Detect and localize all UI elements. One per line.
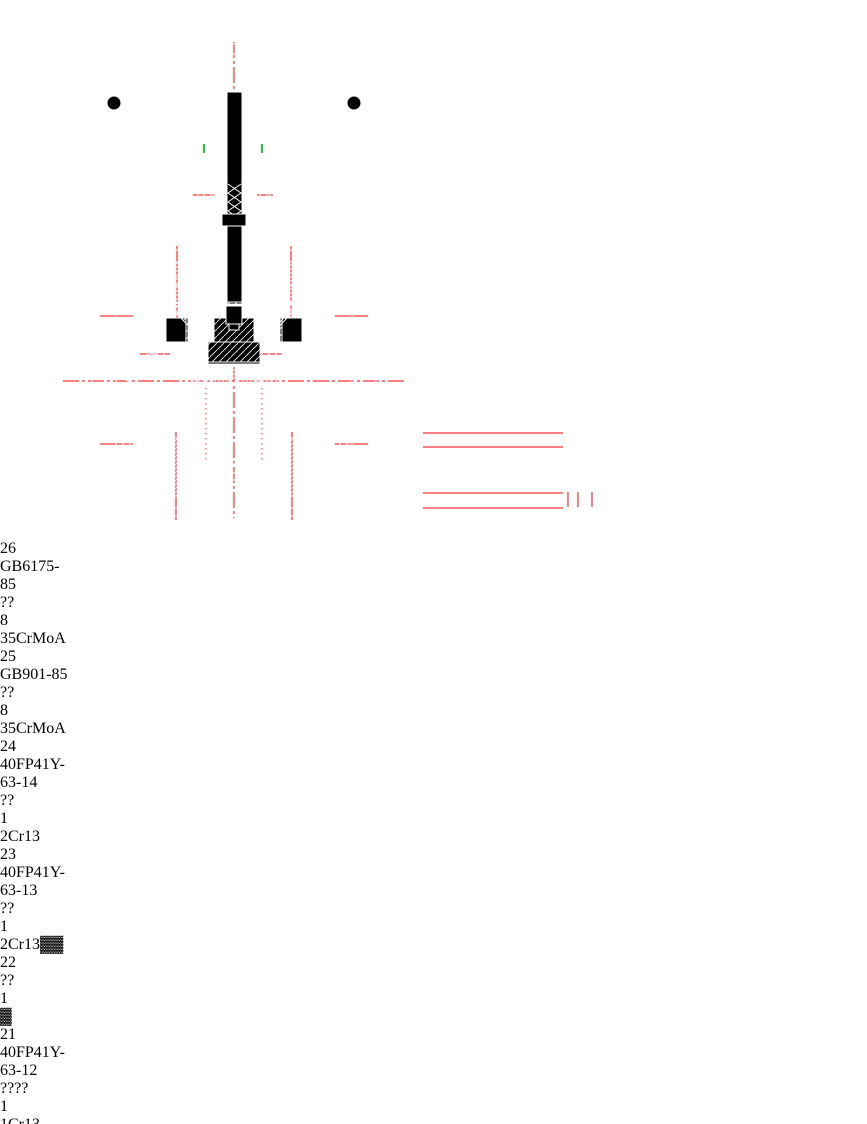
part-name: ?? xyxy=(0,972,75,990)
part-qty: 8 xyxy=(0,612,15,630)
part-code: GB6175-85 xyxy=(0,558,70,594)
callout-number: 15 xyxy=(72,61,86,75)
cad-window: 1514131211109876543211617181920212223242… xyxy=(0,0,867,1124)
part-qty: 1 xyxy=(0,918,15,936)
part-mat: 35CrMoA xyxy=(0,720,68,738)
callout-number: 17 xyxy=(388,71,402,85)
callout-number: 22 xyxy=(388,203,402,217)
part-qty: 1 xyxy=(0,810,15,828)
parts-row: 25GB901-85??835CrMoA xyxy=(0,648,867,738)
callout-number: 20 xyxy=(388,150,402,164)
part-code: GB901-85 xyxy=(0,666,70,684)
callout-number: 24 xyxy=(388,259,402,273)
callout-number: 18 xyxy=(388,98,402,112)
callout-number: 26 xyxy=(388,428,402,442)
part-name: ?? xyxy=(0,684,75,702)
part-code: 40FP41Y-63-14 xyxy=(0,756,70,792)
parts-table: 26GB6175-85??835CrMoA25GB901-85??835CrMo… xyxy=(0,540,867,1124)
part-name: ?? xyxy=(0,594,75,612)
parts-row: 26GB6175-85??835CrMoA xyxy=(0,540,867,648)
part-mat: 2Cr13▓▓ xyxy=(0,936,68,954)
part-no: 21 xyxy=(0,1026,15,1044)
parts-row: 22??1▓ xyxy=(0,954,867,1026)
callout-number: 13 xyxy=(72,113,86,127)
callout-number: 14 xyxy=(72,86,86,100)
callout-number: 19 xyxy=(388,124,402,138)
part-no: 24 xyxy=(0,738,15,756)
part-name: ???? xyxy=(0,1080,75,1098)
callout-number: 11 xyxy=(72,166,86,180)
part-no: 25 xyxy=(0,648,15,666)
part-code: 40FP41Y-63-13 xyxy=(0,864,70,900)
part-no: 22 xyxy=(0,954,15,972)
callout-number: 16 xyxy=(388,43,402,57)
part-qty: 1 xyxy=(0,1098,15,1116)
parts-table-body: 26GB6175-85??835CrMoA25GB901-85??835CrMo… xyxy=(0,540,867,1124)
callout-number: 23 xyxy=(388,231,402,245)
part-name: ?? xyxy=(0,900,75,918)
part-mat: 2Cr13 xyxy=(0,828,68,846)
drawing-canvas[interactable]: 1514131211109876543211617181920212223242… xyxy=(0,0,867,1124)
callout-number: 5 xyxy=(79,328,86,342)
parts-row: 2340FP41Y-63-13??12Cr13▓▓ xyxy=(0,846,867,954)
part-no: 26 xyxy=(0,540,15,558)
callout-number: 25 xyxy=(388,401,402,415)
callout-number: 2 xyxy=(79,405,86,419)
part-qty: 1 xyxy=(0,990,15,1008)
part-name: ?? xyxy=(0,792,75,810)
callout-number: 3 xyxy=(79,381,86,395)
callout-number: 21 xyxy=(388,176,402,190)
part-code: 40FP41Y-63-12 xyxy=(0,1044,70,1080)
part-mat: ▓ xyxy=(0,1008,68,1026)
parts-row: 2440FP41Y-63-14??12Cr13 xyxy=(0,738,867,846)
part-mat: 1Cr13 xyxy=(0,1116,68,1124)
callout-number: 8 xyxy=(79,248,86,262)
title-block-red-lines xyxy=(423,433,592,508)
callout-number: 4 xyxy=(79,354,86,368)
callout-number: 12 xyxy=(72,139,86,153)
valve-assembly-drawing: 1514131211109876543211617181920212223242… xyxy=(0,0,758,535)
parts-row: 2140FP41Y-63-12????11Cr13 xyxy=(0,1026,867,1124)
callout-number: 9 xyxy=(79,223,86,237)
callout-number: 6 xyxy=(79,301,86,315)
part-mat: 35CrMoA xyxy=(0,630,68,648)
part-no: 23 xyxy=(0,846,15,864)
callout-number: 1 xyxy=(79,433,86,447)
part-qty: 8 xyxy=(0,702,15,720)
callout-number: 7 xyxy=(79,275,86,289)
callout-number: 10 xyxy=(72,193,86,207)
